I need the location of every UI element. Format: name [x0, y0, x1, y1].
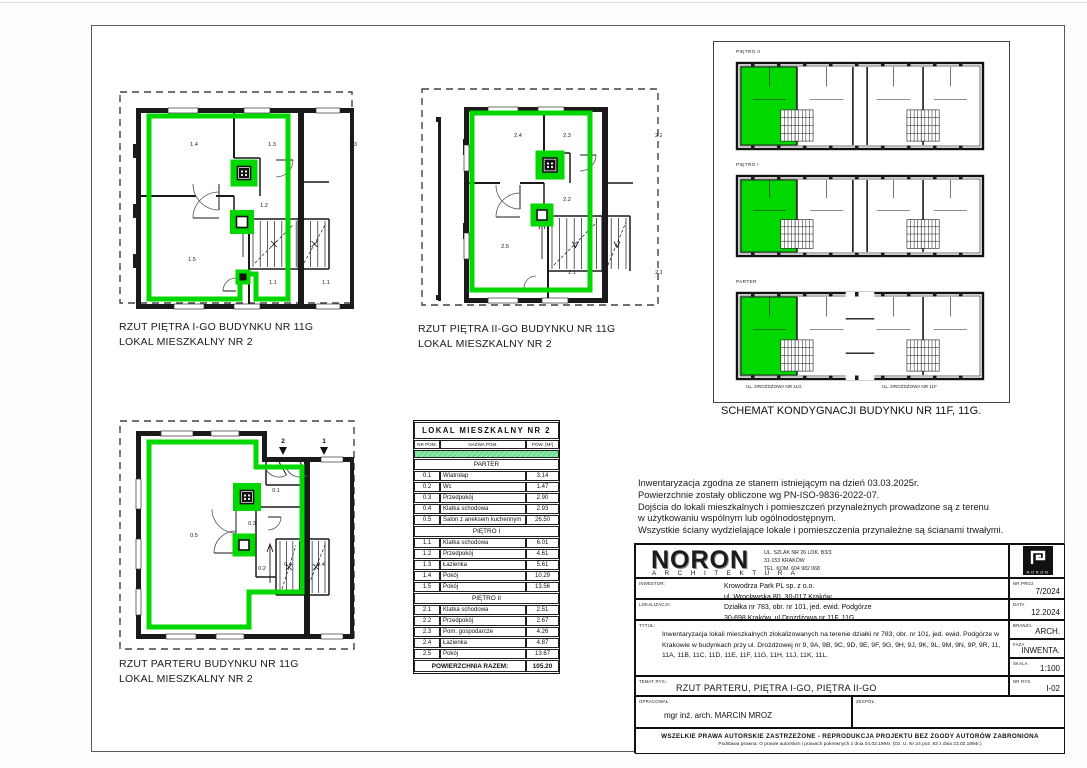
room-area: 2.93 — [526, 504, 559, 514]
field-label: LOKALIZACJA: — [639, 602, 671, 607]
room-label: 0.1 — [272, 488, 280, 494]
strip1-svg — [734, 60, 986, 152]
room-name: Pokój — [440, 571, 526, 581]
table-section-header: PIĘTRO II — [414, 593, 559, 604]
room-number: 0.3 — [414, 493, 440, 503]
zespol-cell: ZESPÓŁ: — [852, 696, 1065, 728]
room-label: 1.2 — [260, 203, 268, 209]
branza-cell: BRANŻA ARCH. — [1009, 620, 1065, 639]
room-label: 2.3 — [563, 133, 571, 139]
schematic-strip-parter — [734, 290, 986, 387]
table-section-header: PARTER — [414, 459, 559, 470]
logo-text: NORON — [1027, 570, 1050, 575]
room-number: 0.5 — [414, 515, 440, 525]
notes-line: Powierzchnie zostały obliczone wg PN-ISO… — [638, 490, 1048, 502]
field-value: I-02 — [1046, 684, 1060, 693]
notes-line: Wszystkie ściany wydzielające lokale i p… — [638, 525, 1048, 537]
room-area: 3.14 — [526, 471, 559, 481]
field-label: NR.PROJ. — [1013, 581, 1035, 586]
field-value: RZUT PARTERU, PIĘTRA I-GO, PIĘTRA II-GO — [676, 683, 877, 693]
entry-number: 2 — [281, 438, 285, 445]
room-label: 0.3 — [248, 521, 256, 527]
skala-cell: SKALA 1:100 — [1009, 658, 1065, 676]
field-label: INWESTOR: — [639, 581, 665, 586]
room-label: 1.5 — [188, 257, 196, 263]
room-label: 2.5 — [501, 244, 509, 250]
room-label: 0.2 — [258, 566, 266, 572]
field-value: 1:100 — [1040, 664, 1060, 673]
drawing-sheet: 1.41.31.21.51.11.11.3 RZUT PIĘTRA I-GO B… — [91, 25, 1065, 752]
strip2-svg — [734, 173, 986, 259]
table-green-row — [414, 450, 559, 458]
room-label: 0.4 — [317, 562, 325, 568]
room-label: 0.4 — [284, 562, 292, 568]
address-line: TEL. KOM. 604 982 068 — [764, 565, 831, 573]
plan-floor2-caption: RZUT PIĘTRA II-GO BUDYNKU NR 11G LOKAL M… — [418, 322, 615, 352]
inwestor-cell: INWESTOR: Krowodrza Park PL sp. z o.o. u… — [635, 578, 1009, 599]
address-line: 31-153 KRAKÓW — [764, 557, 831, 565]
entry-number: 1 — [322, 438, 326, 445]
field-label: OPRACOWAŁ: — [639, 699, 670, 704]
plan-floor2: 2.42.32.22.52.12.22.1 — [420, 83, 662, 322]
schematic-caption: SCHEMAT KONDYGNACJI BUDYNKU NR 11F, 11G. — [721, 405, 981, 417]
area-table-grid: LOKAL MIESZKALNY NR 2NR POM.NAZWA POM.PO… — [413, 420, 560, 674]
field-label: NR RYS. — [1013, 679, 1032, 684]
plan3-svg: 0.50.10.30.20.40.421 — [116, 417, 358, 655]
table-header: POW. [M²] — [526, 440, 559, 449]
room-name: Klatka schodowa — [440, 605, 526, 615]
room-number: 1.2 — [414, 549, 440, 559]
company-address: UL. SZLAK NR 26 LOK. B3/3 31-153 KRAKÓW … — [764, 549, 831, 573]
room-number: 2.3 — [414, 627, 440, 637]
table-total-value: 105.20 — [526, 660, 559, 672]
notes-line: w użytkowaniu wspólnym lub ogólnodostępn… — [638, 513, 1048, 525]
room-name: Salon z aneksem kuchennym — [440, 515, 526, 525]
plan2-svg: 2.42.32.22.52.12.22.1 — [420, 83, 662, 317]
notes-block: Inwentaryzacja zgodna ze stanem istnieją… — [638, 478, 1048, 537]
schematic-panel: PIĘTRO II PIĘTRO I PARTER UL. DROŻDŻOWA … — [713, 41, 1010, 403]
room-name: Pom. gospodarcze — [440, 627, 526, 637]
room-number: 1.4 — [414, 571, 440, 581]
plan1-svg: 1.41.31.21.51.11.11.3 — [116, 86, 358, 316]
room-label: 1.4 — [190, 142, 198, 148]
room-name: Klatka schodowa — [440, 538, 526, 548]
caption-line: LOKAL MIESZKALNY NR 2 — [119, 672, 299, 687]
room-number: 2.1 — [414, 605, 440, 615]
plan-ground-caption: RZUT PARTERU BUDYNKU NR 11G LOKAL MIESZK… — [119, 657, 299, 687]
company-header: NORON A R C H I T E K T U R A UL. SZLAK … — [635, 544, 1009, 578]
room-number: 1.3 — [414, 560, 440, 570]
room-number: 2.2 — [414, 616, 440, 626]
data-cell: DATA 12.2024 — [1009, 599, 1065, 620]
table-header: NR POM. — [414, 440, 440, 449]
room-label: 2.2 — [563, 197, 571, 203]
room-label: 1.1 — [322, 280, 330, 286]
field-value: Inwentaryzacja lokali mieszkalnych zloka… — [662, 630, 1002, 662]
room-area: 4.26 — [526, 627, 559, 637]
field-value: INWENTA. — [1021, 646, 1060, 655]
caption-line: LOKAL MIESZKALNY NR 2 — [119, 335, 313, 350]
address-line: UL. SZLAK NR 26 LOK. B3/3 — [764, 549, 831, 557]
room-area: 6.01 — [526, 538, 559, 548]
faza-cell: FAZA INWENTA. — [1009, 639, 1065, 658]
room-area: 1.47 — [526, 482, 559, 492]
room-number: 2.4 — [414, 638, 440, 648]
field-value: ARCH. — [1035, 627, 1060, 636]
caption-line: RZUT PARTERU BUDYNKU NR 11G — [119, 657, 299, 672]
caption-line: LOKAL MIESZKALNY NR 2 — [418, 337, 615, 352]
room-number: 1.1 — [414, 538, 440, 548]
nr-rys-cell: NR RYS. I-02 — [1009, 676, 1065, 696]
room-label: 2.4 — [514, 133, 522, 139]
floor-label: PIĘTRO I — [736, 163, 759, 168]
room-name: Klatka schodowa — [440, 504, 526, 514]
plan-floor1: 1.41.31.21.51.11.11.3 — [116, 86, 358, 321]
table-title: LOKAL MIESZKALNY NR 2 — [414, 422, 559, 439]
room-area: 13.56 — [526, 582, 559, 592]
room-area: 26.50 — [526, 515, 559, 525]
street-label: UL. DROŻDŻOWA NR 11F — [882, 384, 937, 389]
room-label: 2.1 — [568, 270, 576, 276]
area-table: LOKAL MIESZKALNY NR 2NR POM.NAZWA POM.PO… — [413, 420, 560, 674]
schematic-strip-pietro2 — [734, 60, 986, 157]
room-number: 0.1 — [414, 471, 440, 481]
room-label: 1.1 — [269, 280, 277, 286]
schematic-strip-pietro1 — [734, 173, 986, 264]
room-name: Wiatrołap — [440, 471, 526, 481]
tytul-cell: TYTUŁ: Inwentaryzacja lokali mieszkalnyc… — [635, 620, 1009, 676]
company-logo-cell: NORON — [1009, 544, 1065, 578]
field-label: TEMAT RYS.: — [639, 679, 668, 684]
plan-floor1-caption: RZUT PIĘTRA I-GO BUDYNKU NR 11G LOKAL MI… — [119, 320, 313, 350]
floor-label: PIĘTRO II — [736, 50, 761, 55]
room-name: Łazienka — [440, 638, 526, 648]
room-area: 5.61 — [526, 560, 559, 570]
table-section-header: PIĘTRO I — [414, 526, 559, 537]
field-label: ZESPÓŁ: — [856, 699, 876, 704]
field-value: 12.2024 — [1031, 608, 1060, 617]
nr-proj-cell: NR.PROJ. 7/2024 — [1009, 578, 1065, 599]
room-area: 2.90 — [526, 493, 559, 503]
room-number: 0.4 — [414, 504, 440, 514]
table-total-label: POWIERZCHNIA RAZEM: — [414, 660, 526, 672]
room-label: 2.1 — [655, 270, 662, 276]
room-number: 2.5 — [414, 649, 440, 659]
plan-ground: 0.50.10.30.20.40.421 — [116, 417, 358, 660]
notes-line: Dojścia do lokali mieszkalnych i pomiesz… — [638, 502, 1048, 514]
scan-edge-line — [0, 2, 1087, 3]
field-label: TYTUŁ: — [639, 623, 655, 628]
room-area: 13.67 — [526, 649, 559, 659]
room-name: Pokój — [440, 582, 526, 592]
field-label: SKALA — [1013, 661, 1028, 666]
title-block: NORON A R C H I T E K T U R A UL. SZLAK … — [634, 543, 1064, 753]
floor-label: PARTER — [736, 280, 757, 285]
room-label: 0.5 — [190, 533, 198, 539]
temat-cell: TEMAT RYS.: RZUT PARTERU, PIĘTRA I-GO, P… — [635, 676, 1009, 696]
field-label: DATA — [1013, 602, 1025, 607]
room-number: 1.5 — [414, 582, 440, 592]
noron-logo-icon: NORON — [1023, 546, 1053, 576]
lokalizacja-cell: LOKALIZACJA: Działka nr 783, obr. nr 101… — [635, 599, 1009, 620]
notes-line: Inwentaryzacja zgodna ze stanem istnieją… — [638, 478, 1048, 490]
room-name: Pokój — [440, 649, 526, 659]
room-number: 0.2 — [414, 482, 440, 492]
room-name: Przedpokój — [440, 549, 526, 559]
room-label: 2.2 — [655, 133, 662, 139]
table-header: NAZWA POM. — [440, 440, 526, 449]
room-name: Łazienka — [440, 560, 526, 570]
room-area: 2.67 — [526, 616, 559, 626]
room-area: 10.29 — [526, 571, 559, 581]
room-name: Przedpokój — [440, 616, 526, 626]
room-name: Wc — [440, 482, 526, 492]
room-name: Przedpokój — [440, 493, 526, 503]
room-area: 2.51 — [526, 605, 559, 615]
room-area: 4.61 — [526, 549, 559, 559]
field-value: 7/2024 — [1036, 587, 1060, 596]
room-label: 1.3 — [268, 142, 276, 148]
caption-line: RZUT PIĘTRA II-GO BUDYNKU NR 11G — [418, 322, 615, 337]
strip3-svg — [734, 290, 986, 382]
caption-line: RZUT PIĘTRA I-GO BUDYNKU NR 11G — [119, 320, 313, 335]
street-label: UL. DROŻDŻOWA NR 11G — [746, 384, 802, 389]
opracowal-cell: OPRACOWAŁ: mgr inż. arch. MARCIN MROZ MP… — [635, 696, 852, 728]
copyright-bar: WSZELKIE PRAWA AUTORSKIE ZASTRZEŻONE - R… — [635, 728, 1065, 754]
copyright-line: Podstawa prawna: O prawie autorskim i pr… — [636, 742, 1064, 747]
copyright-line: WSZELKIE PRAWA AUTORSKIE ZASTRZEŻONE - R… — [636, 733, 1064, 740]
field-label: BRANŻA — [1013, 623, 1032, 628]
room-label: 1.3 — [349, 142, 357, 148]
room-area: 4.87 — [526, 638, 559, 648]
